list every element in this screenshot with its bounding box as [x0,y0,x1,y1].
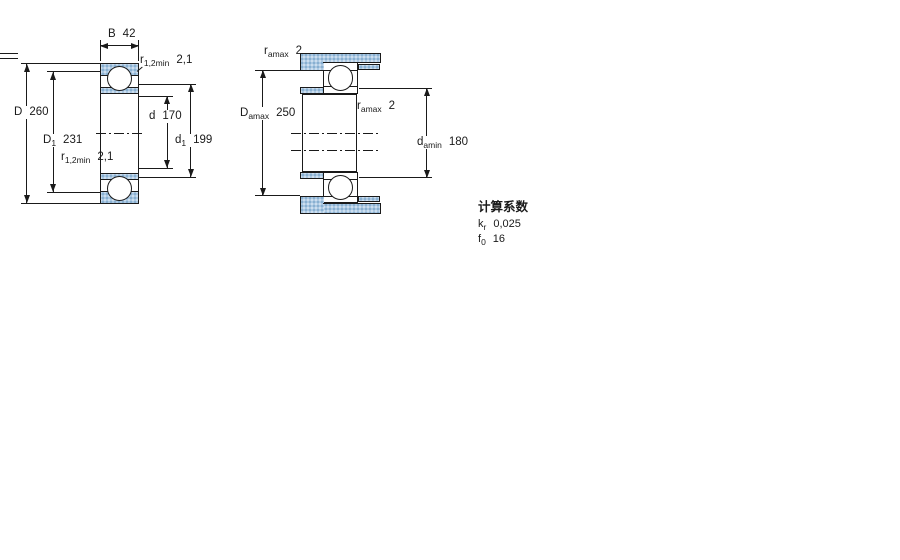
dim-value: 170 [162,110,181,122]
dim-subscript: 1,2min [144,58,170,68]
damin-arrow-top [424,88,430,96]
damax-dimension-line [262,70,263,196]
d1-inner-dimension-line [190,84,191,178]
dim-subscript: 1,2min [65,155,91,165]
d1-arrow-bottom [50,184,56,192]
dim-symbol: d [149,110,155,122]
housing-top-outline-top [300,53,381,54]
dim-label-shoulder-D1: D1231 [42,134,83,147]
centerline-left-figure [96,133,143,134]
bore-arrow-top [164,96,170,104]
fillet-label-r12min-top: r1,2min2,1 [140,54,192,67]
dim-subscript: 1 [181,138,186,148]
dim-symbol: D [14,106,22,118]
d-outer-extension-top [21,63,100,64]
factor-subscript: r [484,222,487,232]
d-outer-extension-bottom [21,203,100,204]
factor-value: 16 [493,233,505,245]
dim-value: 2,1 [97,151,113,163]
fillet-label-r12min-mid: r1,2min2,1 [61,151,113,164]
d1-dimension-line [53,72,54,192]
bearing-technical-drawing: B42 D260 D1231 r1,2min2,1 d170 d1199 r1,… [0,0,900,560]
housing-bore-line-bottom [323,203,380,204]
dim-subscript: amax [361,104,382,114]
dim-value: 2 [296,45,302,57]
factor-value: 0,025 [493,218,521,230]
centerline-right-figure-2 [291,150,380,151]
damax-extension-bottom [255,195,300,196]
dim-value: 250 [276,107,295,119]
spacer-strip-bottom [358,196,380,202]
damin-dimension-line [426,88,427,178]
dim-symbol: B [108,28,116,40]
bore-arrow-bottom [164,160,170,168]
d1-extension-bottom [47,192,100,193]
b-arrow-left [100,43,108,49]
fillet-label-ramax-top: ramax2 [264,45,302,58]
dim-value: 180 [449,136,468,148]
bore-extension-top [139,96,173,97]
centerline-right-figure [291,133,380,134]
d1-extension-top [47,71,100,72]
d1-inner-extension-top [139,84,196,85]
stray-line [0,53,18,54]
bearing-top-ball [328,65,353,90]
factor-subscript: 0 [481,237,486,247]
d1-arrow-top [50,72,56,80]
dim-value: 2 [389,100,395,112]
dim-value: 42 [123,28,136,40]
dim-label-Damax: Damax250 [239,107,296,120]
dim-subscript: 1 [51,138,56,148]
dim-value: 2,1 [176,54,192,66]
housing-bottom-shoulder [300,196,324,213]
d1-inner-arrow-top [188,84,194,92]
damin-extension-top [359,88,433,89]
stray-line [0,58,18,59]
dim-value: 199 [193,134,212,146]
housing-bottom-shoulder-top [300,196,324,197]
d-outer-dimension-line [26,64,27,204]
dim-value: 260 [29,106,48,118]
factor-symbol: k [478,218,484,230]
housing-top-shoulder [300,53,324,71]
spacer-strip-top [358,64,380,70]
calc-factor-kr: kr0,025 [478,218,521,231]
b-arrow-right [131,43,139,49]
dim-label-outer-diameter-D: D260 [13,106,50,119]
bore-dimension-line [167,96,168,168]
housing-bottom-outline-right [380,203,381,214]
dim-value: 231 [63,134,82,146]
d1-inner-arrow-bottom [188,169,194,177]
housing-top-outline-right [380,53,381,63]
shaft-shoulder-bottom [300,172,324,179]
dim-subscript: amax [248,111,269,121]
damin-extension-bottom [359,177,433,178]
housing-top-shoulder-bottom [300,70,324,71]
damax-extension-top [255,70,300,71]
d-outer-arrow-top [24,64,30,72]
damax-arrow-top [260,70,266,78]
dim-label-damin: damin180 [416,136,469,149]
fillet-label-ramax-mid: ramax2 [357,100,395,113]
dim-subscript: amin [423,140,441,150]
shaft-shoulder-top [300,87,324,94]
dim-subscript: amax [268,49,289,59]
d1-inner-extension-bottom [139,177,196,178]
calc-factor-f0: f016 [478,233,505,246]
calc-factors-title: 计算系数 [478,196,528,215]
housing-bottom-outline-left [300,196,301,213]
ball-bottom [107,176,132,201]
housing-bottom-outline-bottom [300,213,381,214]
dim-label-shoulder-d1: d1199 [174,134,213,147]
dim-label-width-B: B42 [108,28,135,41]
dim-label-bore-d: d170 [148,110,183,123]
ball-top [107,66,132,91]
bore-extension-bottom [139,168,173,169]
